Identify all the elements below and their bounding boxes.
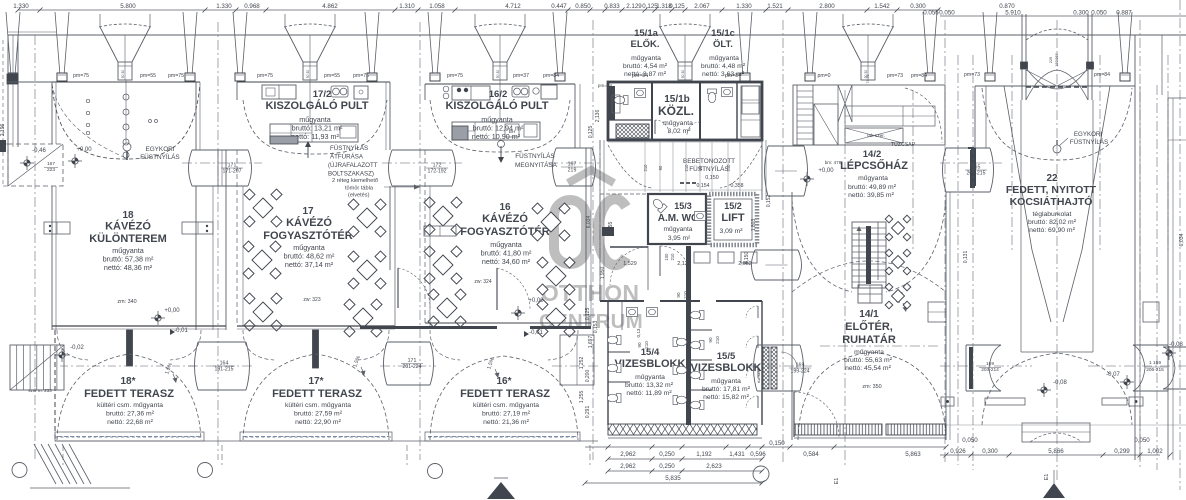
svg-text:15/5: 15/5 [717,351,736,362]
svg-text:1.058: 1.058 [429,3,445,10]
svg-text:nettó: 21,36 m²: nettó: 21,36 m² [483,419,529,426]
svg-text:4.712: 4.712 [505,3,521,10]
svg-text:1.330: 1.330 [736,3,752,10]
svg-text:0,13: 0,13 [636,328,641,337]
svg-text:FEDETT TERASZ: FEDETT TERASZ [272,388,362,400]
svg-text:műgyanta: műgyanta [664,226,693,233]
svg-text:210: 210 [684,164,689,172]
svg-text:90: 90 [708,337,713,343]
svg-text:1.330: 1.330 [13,3,29,10]
svg-text:1,192: 1,192 [696,451,712,458]
svg-text:-0,02: -0,02 [70,345,84,351]
svg-text:nettó: 15,82 m²: nettó: 15,82 m² [703,394,749,401]
svg-text:22: 22 [1046,173,1058,184]
svg-text:tak szer.: tak szer. [867,133,885,139]
svg-text:4.862: 4.862 [322,3,338,10]
svg-text:50 30: 50 30 [121,70,125,79]
svg-text:15/4: 15/4 [641,347,660,358]
svg-text:0,125: 0,125 [588,126,594,139]
svg-text:0,300: 0,300 [982,448,998,455]
svg-text:műgyanta: műgyanta [631,55,661,62]
svg-text:szél m: 233: szél m: 233 [28,388,52,393]
svg-text:2,962: 2,962 [620,463,636,470]
svg-text:bruttó: 4,54 m²: bruttó: 4,54 m² [623,63,668,70]
svg-text:210: 210 [715,336,720,344]
svg-text:1,697: 1,697 [588,336,594,349]
svg-text:KÁVÉZÓ: KÁVÉZÓ [482,212,528,225]
svg-text:A.M. WC: A.M. WC [658,213,699,224]
svg-text:KISZOLGÁLÓ PULT: KISZOLGÁLÓ PULT [265,99,368,112]
svg-text:nettó: 39,85 m²: nettó: 39,85 m² [848,192,894,199]
svg-text:1.542: 1.542 [874,3,890,10]
svg-text:BEBETONOZOTT: BEBETONOZOTT [683,158,735,165]
svg-text:FEDETT TERASZ: FEDETT TERASZ [460,388,550,400]
svg-text:0,250: 0,250 [659,451,675,458]
svg-text:bruttó: 27,19 m²: bruttó: 27,19 m² [482,411,531,418]
svg-text:TŰZCSAP: TŰZCSAP [891,141,916,148]
svg-text:BH: BH [509,129,515,134]
svg-text:pm=84: pm=84 [543,73,559,79]
svg-text:0,584: 0,584 [803,451,819,458]
svg-text:bruttó: 82,02 m²: bruttó: 82,02 m² [1028,219,1077,226]
svg-text:EGYKORI: EGYKORI [1074,131,1102,138]
svg-text:3,02 m²: 3,02 m² [667,128,691,135]
svg-text:6,034: 6,034 [586,216,592,229]
svg-text:206-215: 206-215 [1146,367,1164,373]
svg-text:5,863: 5,863 [905,451,921,458]
svg-text:nettó: 22,90 m²: nettó: 22,90 m² [295,419,341,426]
svg-text:90: 90 [698,165,703,170]
svg-text:0,291: 0,291 [585,406,591,419]
svg-text:172-192: 172-192 [427,169,446,175]
svg-text:műgyanta: műgyanta [709,55,739,62]
svg-text:5.910: 5.910 [1005,10,1021,17]
svg-text:0,200: 0,200 [585,370,591,383]
svg-text:bruttó: 13,32 m²: bruttó: 13,32 m² [625,382,674,389]
svg-text:KÁVÉZÓ: KÁVÉZÓ [105,220,151,233]
svg-text:zm: 350: zm: 350 [862,384,881,390]
svg-text:1,255: 1,255 [579,391,585,404]
svg-text:FEDETT, NYITOTT: FEDETT, NYITOTT [1006,184,1097,196]
svg-text:223: 223 [47,167,55,173]
svg-text:nettó: 11,89 m²: nettó: 11,89 m² [626,390,672,397]
svg-text:pm=73: pm=73 [964,72,980,78]
svg-text:0,596: 0,596 [750,451,766,458]
svg-text:1.521: 1.521 [767,3,783,10]
svg-text:ELŐTÉR,: ELŐTÉR, [845,320,893,333]
svg-text:219: 219 [568,168,577,174]
svg-text:FÜSTNYÍLÁS: FÜSTNYÍLÁS [515,151,554,160]
svg-text:2 réteg kiemelhető: 2 réteg kiemelhető [332,178,378,184]
svg-text:FÜSTNYÍLÁS: FÜSTNYÍLÁS [140,152,179,161]
svg-text:50 30: 50 30 [496,70,500,79]
svg-text:0.300: 0.300 [1073,10,1089,17]
svg-text:pm=84: pm=84 [911,73,927,79]
svg-text:LIFT: LIFT [721,212,744,224]
svg-text:tömör tábla: tömör tábla [345,186,374,192]
svg-text:1.330: 1.330 [216,3,232,10]
svg-text:3,09 m²: 3,09 m² [719,228,743,235]
svg-text:KÁVÉZÓ: KÁVÉZÓ [286,216,332,229]
svg-text:nettó: 48,36 m²: nettó: 48,36 m² [104,263,153,272]
svg-text:1,252: 1,252 [579,357,585,370]
svg-text:-0,01: -0,01 [529,330,543,336]
svg-text:210: 210 [726,164,731,172]
svg-text:2,623: 2,623 [706,463,722,470]
svg-text:2.129: 2.129 [626,3,642,10]
svg-text:-0,08: -0,08 [1053,380,1067,386]
svg-text:+0,00: +0,00 [818,168,834,174]
svg-text:KÜLÖNTEREM: KÜLÖNTEREM [89,232,167,245]
svg-text:műgyanta: műgyanta [663,120,693,127]
svg-text:+0,00: +0,00 [164,308,180,314]
svg-text:203-214: 203-214 [981,367,999,373]
svg-text:nettó: 69,90 m²: nettó: 69,90 m² [1029,227,1075,234]
svg-text:bm: 478: bm: 478 [825,160,842,165]
svg-text:5,866: 5,866 [1048,448,1064,455]
svg-text:KISZOLGÁLÓ PULT: KISZOLGÁLÓ PULT [445,99,548,112]
svg-text:3,95 m²: 3,95 m² [668,235,691,242]
svg-text:ELŐK.: ELŐK. [630,38,659,50]
svg-text:5.800: 5.800 [120,3,136,10]
svg-text:16: 16 [499,202,511,213]
svg-text:E1: E1 [834,478,840,485]
svg-text:16/2: 16/2 [489,89,508,100]
svg-text:1.310: 1.310 [399,3,415,10]
svg-text:nettó: 3,87 m²: nettó: 3,87 m² [624,71,667,78]
svg-text:0.050: 0.050 [939,10,955,17]
svg-text:műgyanta: műgyanta [711,378,741,385]
svg-text:0.050: 0.050 [1091,10,1107,17]
svg-text:1,803: 1,803 [751,219,757,232]
svg-text:ÖLT.: ÖLT. [713,39,733,50]
svg-text:RUHATÁR: RUHATÁR [842,333,896,346]
svg-text:1,855: 1,855 [608,222,614,235]
svg-text:bruttó: 55,63 m²: bruttó: 55,63 m² [844,357,893,364]
svg-text:1 169: 1 169 [1149,360,1161,366]
svg-text:(ÚJRAFALAZOTT: (ÚJRAFALAZOTT [328,162,378,169]
svg-text:171-207: 171-207 [222,169,241,175]
svg-text:203-215: 203-215 [966,171,985,177]
svg-text:E1: E1 [1044,474,1050,481]
svg-text:15/3: 15/3 [674,201,692,211]
svg-text:2.067: 2.067 [694,3,710,10]
svg-text:15/1c: 15/1c [711,28,735,39]
svg-text:15/2: 15/2 [724,201,742,211]
svg-text:LÉPCSŐHÁZ: LÉPCSŐHÁZ [840,159,908,172]
svg-text:FÜSTNYÍLÁS: FÜSTNYÍLÁS [1070,139,1108,146]
svg-text:(elvetés): (elvetés) [348,193,370,199]
svg-text:kültéri csm. műgyanta: kültéri csm. műgyanta [285,402,351,409]
svg-text:pm=75: pm=75 [257,73,273,79]
svg-text:1,431: 1,431 [729,451,745,458]
svg-text:pm=37: pm=37 [513,73,529,79]
svg-text:17: 17 [302,206,314,217]
svg-text:nettó: 45,54 m²: nettó: 45,54 m² [845,365,891,372]
svg-text:2,196: 2,196 [0,124,6,137]
svg-text:pm=75: pm=75 [168,73,184,79]
svg-text:100: 100 [664,253,669,261]
svg-text:15/1a: 15/1a [634,28,658,39]
svg-text:201-224: 201-224 [402,364,421,370]
svg-text:17/2: 17/2 [313,89,332,100]
svg-text:1,002: 1,002 [1147,448,1163,455]
svg-text:pm=73: pm=73 [887,73,903,79]
svg-text:EGYKORI: EGYKORI [145,146,174,153]
svg-text:bruttó: 27,36 m²: bruttó: 27,36 m² [106,411,155,418]
svg-text:2,136: 2,136 [595,110,601,123]
svg-text:FEDETT TERASZ: FEDETT TERASZ [84,388,174,400]
svg-text:0,125: 0,125 [585,308,591,321]
svg-text:nettó: 34,60 m²: nettó: 34,60 m² [482,257,531,266]
svg-text:zm: 340: zm: 340 [117,299,136,305]
svg-text:14/1: 14/1 [859,309,879,320]
svg-text:pm=84: pm=84 [1094,72,1110,78]
svg-text:0.447: 0.447 [551,3,567,10]
svg-text:+0,00: +0,00 [76,147,92,153]
svg-text:pm=55: pm=55 [324,73,340,79]
svg-text:50 30: 50 30 [681,70,685,79]
svg-text:0,154: 0,154 [697,183,710,189]
svg-text:+0,00: +0,00 [528,298,544,304]
svg-text:tüz.szak.: tüz.szak. [756,367,761,383]
svg-text:pm=55: pm=55 [140,73,156,79]
svg-text:5,835: 5,835 [665,475,681,482]
svg-text:zw: 324: zw: 324 [474,279,491,285]
svg-text:90: 90 [658,165,663,170]
svg-text:bruttó: 49,89 m²: bruttó: 49,89 m² [848,184,897,191]
svg-text:17*: 17* [308,376,323,387]
svg-text:14/2: 14/2 [863,149,882,160]
svg-text:-0,46: -0,46 [32,148,46,154]
svg-text:nettó: 37,14 m²: nettó: 37,14 m² [285,260,334,269]
svg-text:0,299: 0,299 [1114,448,1130,455]
svg-text:zw: 323: zw: 323 [303,297,320,303]
svg-text:18*: 18* [120,376,135,387]
svg-text:0,358: 0,358 [731,183,744,189]
svg-text:50 30: 50 30 [306,70,310,79]
svg-text:FÜSTNYÍLÁS: FÜSTNYÍLÁS [330,145,368,152]
svg-text:210: 210 [643,164,648,172]
svg-text:0,050: 0,050 [962,437,978,444]
svg-text:kültéri csm. műgyanta: kültéri csm. műgyanta [97,402,163,409]
svg-text:BOLTSZAKASZ): BOLTSZAKASZ) [328,171,374,178]
svg-text:nettó: 22,68 m²: nettó: 22,68 m² [107,419,153,426]
svg-text:0,926: 0,926 [950,448,966,455]
svg-text:pm=76: pm=76 [353,73,369,79]
svg-text:0,250: 0,250 [659,463,675,470]
svg-text:pm=84: pm=84 [598,83,613,88]
svg-text:74 76: 74 76 [866,75,870,84]
svg-text:167: 167 [47,161,55,167]
svg-text:0,131: 0,131 [963,251,969,264]
svg-text:KOCSIÁTHAJTÓ: KOCSIÁTHAJTÓ [1010,195,1093,208]
svg-text:1,529: 1,529 [623,261,637,267]
svg-text:90: 90 [676,292,681,298]
svg-text:0.833: 0.833 [604,3,620,10]
svg-text:1,950: 1,950 [600,267,606,280]
svg-text:16*: 16* [496,376,511,387]
svg-text:0.850: 0.850 [575,3,591,10]
svg-text:0.968: 0.968 [244,3,260,10]
svg-text:229: 229 [1049,57,1053,63]
svg-text:pm=75: pm=75 [447,73,463,79]
svg-text:210: 210 [670,253,675,261]
svg-text:műgyanta: műgyanta [635,374,665,381]
svg-text:ÁTFÚRÁSA: ÁTFÚRÁSA [330,154,364,161]
svg-text:bruttó: 4,48 m²: bruttó: 4,48 m² [701,63,746,70]
svg-text:nettó: 3,63 m²: nettó: 3,63 m² [702,71,745,78]
svg-text:199-224: 199-224 [790,369,809,375]
svg-text:18: 18 [122,210,134,221]
svg-text:téglaburkolat: téglaburkolat [1033,211,1072,218]
svg-text:191-215: 191-215 [214,367,233,373]
svg-text:pm=75: pm=75 [73,73,89,79]
svg-text:2,962: 2,962 [620,451,636,458]
svg-text:FÜSTNYÍLÁS: FÜSTNYÍLÁS [689,164,728,173]
svg-text:műgyanta: műgyanta [858,175,888,182]
svg-text:bruttó: 27,59 m²: bruttó: 27,59 m² [294,411,343,418]
svg-text:-0,07: -0,07 [1106,372,1120,378]
svg-text:0,150: 0,150 [744,252,750,265]
svg-text:kültéri csm. műgyanta: kültéri csm. műgyanta [473,402,539,409]
svg-text:0,050: 0,050 [1134,437,1150,444]
svg-text:2.800: 2.800 [819,3,835,10]
svg-text:pm=0: pm=0 [817,73,830,79]
svg-text:0,153: 0,153 [593,321,599,334]
svg-text:MEGNYITÁSA: MEGNYITÁSA [515,160,558,169]
svg-text:0.125: 0.125 [669,3,685,10]
svg-text:KÖZL.: KÖZL. [658,103,694,118]
svg-text:FOGYASZTÓTÉR: FOGYASZTÓTÉR [263,229,352,242]
